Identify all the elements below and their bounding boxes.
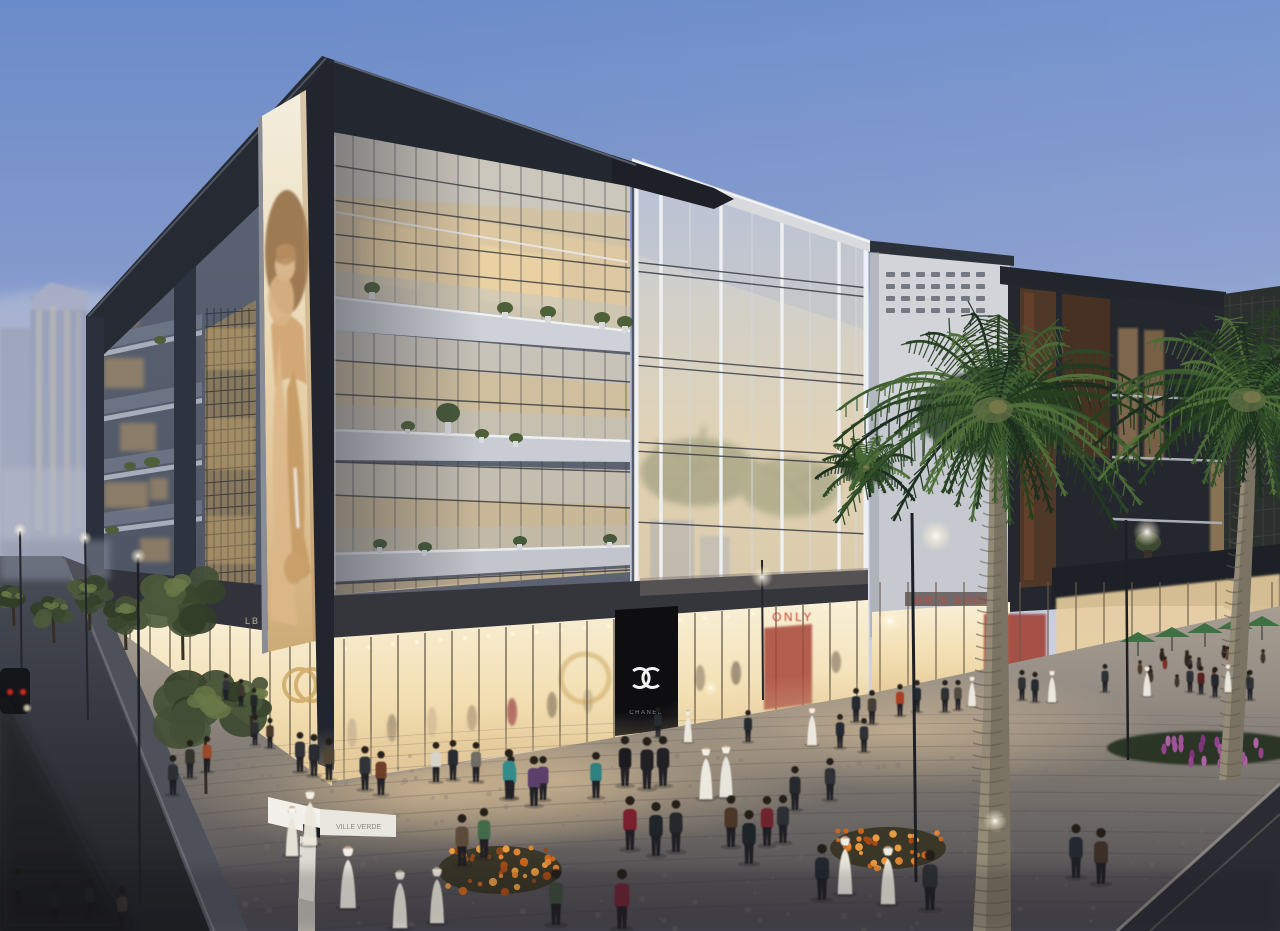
svg-text:VILLE VERDE: VILLE VERDE [336,824,381,831]
svg-text:GRIS SHOW: GRIS SHOW [914,595,996,607]
svg-text:ONLY: ONLY [772,610,814,624]
svg-text:LB: LB [245,616,260,626]
